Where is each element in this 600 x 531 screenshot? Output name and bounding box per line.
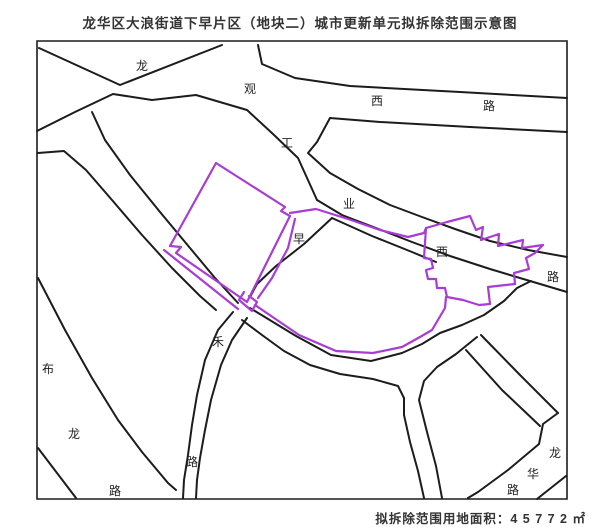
boundary-corridor-line bbox=[258, 219, 295, 298]
road-line bbox=[242, 320, 424, 498]
road-label-char: 龙 bbox=[68, 427, 80, 441]
road-label-char: 路 bbox=[186, 454, 198, 469]
road-label-char: 西 bbox=[436, 245, 448, 259]
area-caption-value: 4 5 7 7 2 bbox=[510, 512, 568, 526]
area-caption: 拟拆除范围用地面积：4 5 7 7 2 ㎡ bbox=[375, 508, 586, 527]
road-label-char: 业 bbox=[343, 197, 355, 211]
road-label-char: 路 bbox=[507, 482, 519, 497]
road-line bbox=[481, 335, 558, 413]
road-label-char: 西 bbox=[371, 94, 383, 108]
road-label-char: 观 bbox=[244, 82, 256, 96]
road-line bbox=[330, 118, 567, 132]
road-label-char: 布 bbox=[42, 362, 54, 376]
road-line bbox=[38, 151, 216, 310]
road-line bbox=[466, 350, 540, 426]
road-line bbox=[250, 218, 332, 297]
road-line bbox=[308, 118, 567, 257]
road-line bbox=[258, 45, 567, 98]
road-line bbox=[37, 94, 317, 200]
road-line bbox=[183, 312, 233, 498]
boundary-left-parcel bbox=[170, 163, 290, 302]
road-line bbox=[537, 476, 566, 499]
area-caption-unit: ㎡ bbox=[572, 512, 586, 526]
boundary-right-parcel bbox=[424, 216, 543, 305]
boundary-offset-line bbox=[164, 250, 238, 309]
boundary-south-return bbox=[255, 297, 446, 353]
road-label-char: 龙 bbox=[136, 59, 148, 73]
road-line bbox=[92, 112, 238, 303]
boundary-neck-line bbox=[290, 209, 426, 237]
road-line bbox=[332, 218, 436, 262]
road-label-char: 龙 bbox=[549, 446, 561, 460]
road-label-char: 路 bbox=[109, 483, 121, 498]
map-svg: 龙观西路工业西路早禾路布龙路龙华路 bbox=[0, 0, 600, 531]
road-label-char: 禾 bbox=[212, 335, 224, 349]
road-label-char: 早 bbox=[293, 232, 305, 246]
demolition-boundary bbox=[164, 163, 543, 353]
road-label-char: 华 bbox=[527, 467, 539, 481]
road-line bbox=[419, 337, 477, 498]
road-label-char: 路 bbox=[547, 269, 559, 284]
road-labels-layer: 龙观西路工业西路早禾路布龙路龙华路 bbox=[42, 59, 561, 498]
road-line bbox=[38, 448, 76, 498]
map-figure: 龙华区大浪街道下早片区（地块二）城市更新单元拟拆除范围示意图 bbox=[0, 0, 600, 531]
area-caption-label: 拟拆除范围用地面积： bbox=[375, 512, 510, 526]
road-label-char: 工 bbox=[281, 136, 293, 150]
road-line bbox=[38, 278, 176, 490]
road-line bbox=[39, 45, 222, 85]
road-network bbox=[37, 45, 567, 499]
road-label-char: 路 bbox=[483, 98, 495, 113]
